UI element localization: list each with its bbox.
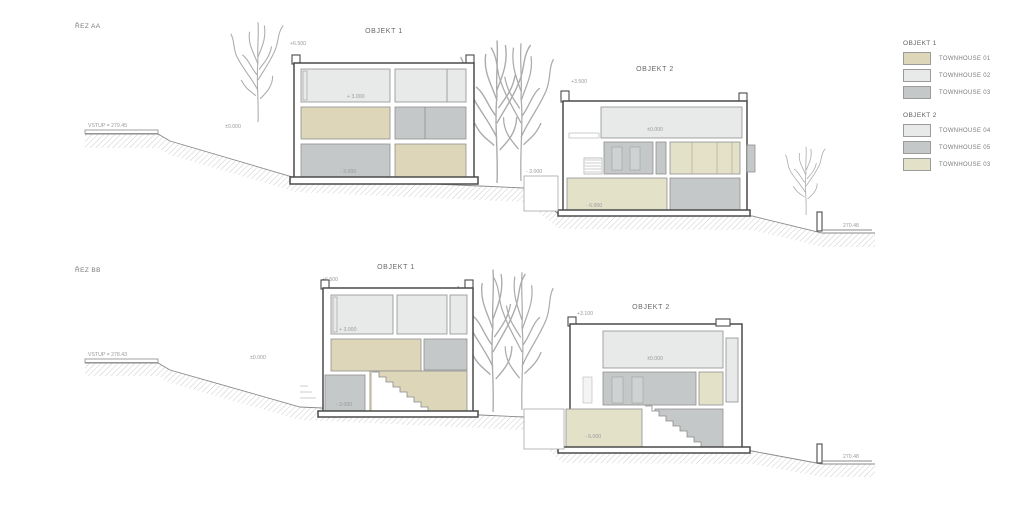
side-level-label: - 3.000	[526, 169, 542, 175]
building-objekt2-bb: OBJEKT 2 +3.100 ±0.000 - 6.000	[524, 304, 750, 453]
room-townhouse02	[395, 69, 466, 102]
section-aa-label: ŘEZ AA	[75, 21, 101, 30]
legend-item: TOWNHOUSE 01	[903, 52, 1021, 65]
swatch-townhouse05	[903, 141, 931, 154]
legend: OBJEKT 1 TOWNHOUSE 01 TOWNHOUSE 02 TOWNH…	[903, 40, 1021, 184]
room-townhouse02	[450, 295, 467, 334]
room-townhouse03-beige	[699, 372, 723, 405]
vstup-label-bb: VSTUP = 278.43	[88, 352, 127, 358]
base-slab	[558, 210, 750, 216]
tree-sketch	[493, 272, 553, 410]
base-slab	[290, 177, 478, 184]
legend-label: TOWNHOUSE 04	[939, 128, 991, 134]
building-objekt2-aa: OBJEKT 2 +3.500 ±0.000 - 6.000 - 3.000	[524, 66, 755, 216]
legend-item: TOWNHOUSE 03	[903, 86, 1021, 99]
room-townhouse05	[656, 142, 666, 174]
legend-item: TOWNHOUSE 05	[903, 141, 1021, 154]
balcony	[747, 145, 755, 172]
retaining-pocket	[524, 176, 558, 211]
room-townhouse04	[603, 331, 723, 368]
room-townhouse04	[726, 338, 738, 402]
building-objekt1-aa: OBJEKT 1 +6.500 + 3.000 - 3.000	[290, 28, 478, 184]
level-label: + 3.000	[347, 94, 365, 100]
retaining-pocket	[524, 409, 564, 449]
vstup-label-aa: VSTUP = 279.45	[88, 123, 127, 129]
room-townhouse03-beige	[566, 409, 642, 447]
room-townhouse02	[397, 295, 447, 334]
objekt1-title-aa: OBJEKT 1	[365, 28, 403, 35]
swatch-townhouse03-beige	[903, 158, 931, 171]
section-bb-label: ŘEZ BB	[75, 265, 101, 274]
building-objekt1-bb: OBJEKT 1 +6.500 + 3.000 - 3.000	[318, 264, 478, 417]
level-label: - 3.000	[340, 169, 356, 175]
legend-group-objekt1: OBJEKT 1 TOWNHOUSE 01 TOWNHOUSE 02 TOWNH…	[903, 40, 1021, 99]
room-townhouse01	[301, 107, 390, 139]
room-townhouse01	[331, 339, 421, 371]
swatch-townhouse03	[903, 86, 931, 99]
section-drawing-sheet: ŘEZ AA VSTUP = 279.45 ±0.000 OBJEKT 1 +6…	[0, 0, 1024, 512]
room-townhouse04	[601, 107, 742, 138]
objekt1-roof-level-aa: +6.500	[290, 41, 306, 47]
legend-group-objekt2: OBJEKT 2 TOWNHOUSE 04 TOWNHOUSE 05 TOWNH…	[903, 112, 1021, 171]
level-label: + 3.000	[339, 327, 357, 333]
base-slab	[318, 411, 478, 417]
room-townhouse03-beige	[567, 178, 667, 210]
section-bb: ŘEZ BB VSTUP = 278.43 ±0.000 OBJEKT 1 +6…	[75, 264, 875, 477]
legend-item: TOWNHOUSE 03	[903, 158, 1021, 171]
level-label: - 3.000	[336, 402, 352, 408]
legend-label: TOWNHOUSE 05	[939, 145, 991, 151]
legend-label: TOWNHOUSE 02	[939, 73, 991, 79]
tree-sketch	[785, 147, 825, 215]
roof-step	[716, 319, 730, 326]
door	[612, 377, 623, 403]
level-label: - 6.000	[585, 434, 601, 440]
door	[583, 377, 592, 403]
entry-platform-bb	[85, 359, 158, 363]
legend-label: TOWNHOUSE 01	[939, 56, 991, 62]
legend-title: OBJEKT 2	[903, 112, 1021, 119]
swatch-townhouse04	[903, 124, 931, 137]
retaining-wall	[817, 212, 822, 231]
legend-label: TOWNHOUSE 03	[939, 90, 991, 96]
legend-title: OBJEKT 1	[903, 40, 1021, 47]
room-townhouse01	[395, 144, 466, 177]
legend-label: TOWNHOUSE 03	[939, 162, 991, 168]
objekt2-roof-level-aa: +3.500	[571, 79, 587, 85]
objekt1-title-bb: OBJEKT 1	[377, 264, 415, 271]
retaining-wall	[817, 444, 822, 463]
tree-sketch	[491, 43, 554, 181]
objekt2-title-bb: OBJEKT 2	[632, 304, 670, 311]
room-townhouse02	[301, 69, 390, 102]
section-aa: ŘEZ AA VSTUP = 279.45 ±0.000 OBJEKT 1 +6…	[75, 21, 875, 247]
objekt2-title-aa: OBJEKT 2	[636, 66, 674, 73]
objekt2-roof-level-bb: +3.100	[577, 311, 593, 317]
entry-level-aa: ±0.000	[225, 124, 241, 130]
room-townhouse03	[424, 339, 467, 370]
room-townhouse03-beige	[670, 142, 740, 174]
door	[632, 377, 643, 403]
swatch-townhouse02	[903, 69, 931, 82]
level-label: ±0.000	[647, 356, 663, 362]
level-label: - 6.000	[586, 203, 602, 209]
room-townhouse05	[670, 178, 740, 210]
base-slab	[558, 447, 750, 453]
swatch-townhouse01	[903, 52, 931, 65]
terrain-elevation-aa: 270.48	[843, 223, 859, 229]
terrace-steps	[300, 386, 316, 398]
legend-item: TOWNHOUSE 02	[903, 69, 1021, 82]
sections-svg: ŘEZ AA VSTUP = 279.45 ±0.000 OBJEKT 1 +6…	[0, 0, 1024, 512]
terrain-elevation-bb: 270.48	[843, 454, 859, 460]
terrain-line-bb	[85, 363, 875, 464]
door	[612, 147, 622, 170]
room-townhouse05	[604, 142, 653, 174]
entry-level-bb: ±0.000	[250, 355, 266, 361]
terrain-bb	[85, 363, 875, 477]
door	[630, 147, 640, 170]
level-label: ±0.000	[647, 127, 663, 133]
landing	[569, 133, 599, 138]
entry-platform-aa	[85, 130, 158, 134]
room-townhouse03	[395, 107, 466, 139]
legend-item: TOWNHOUSE 04	[903, 124, 1021, 137]
tree-sketch	[231, 22, 284, 122]
